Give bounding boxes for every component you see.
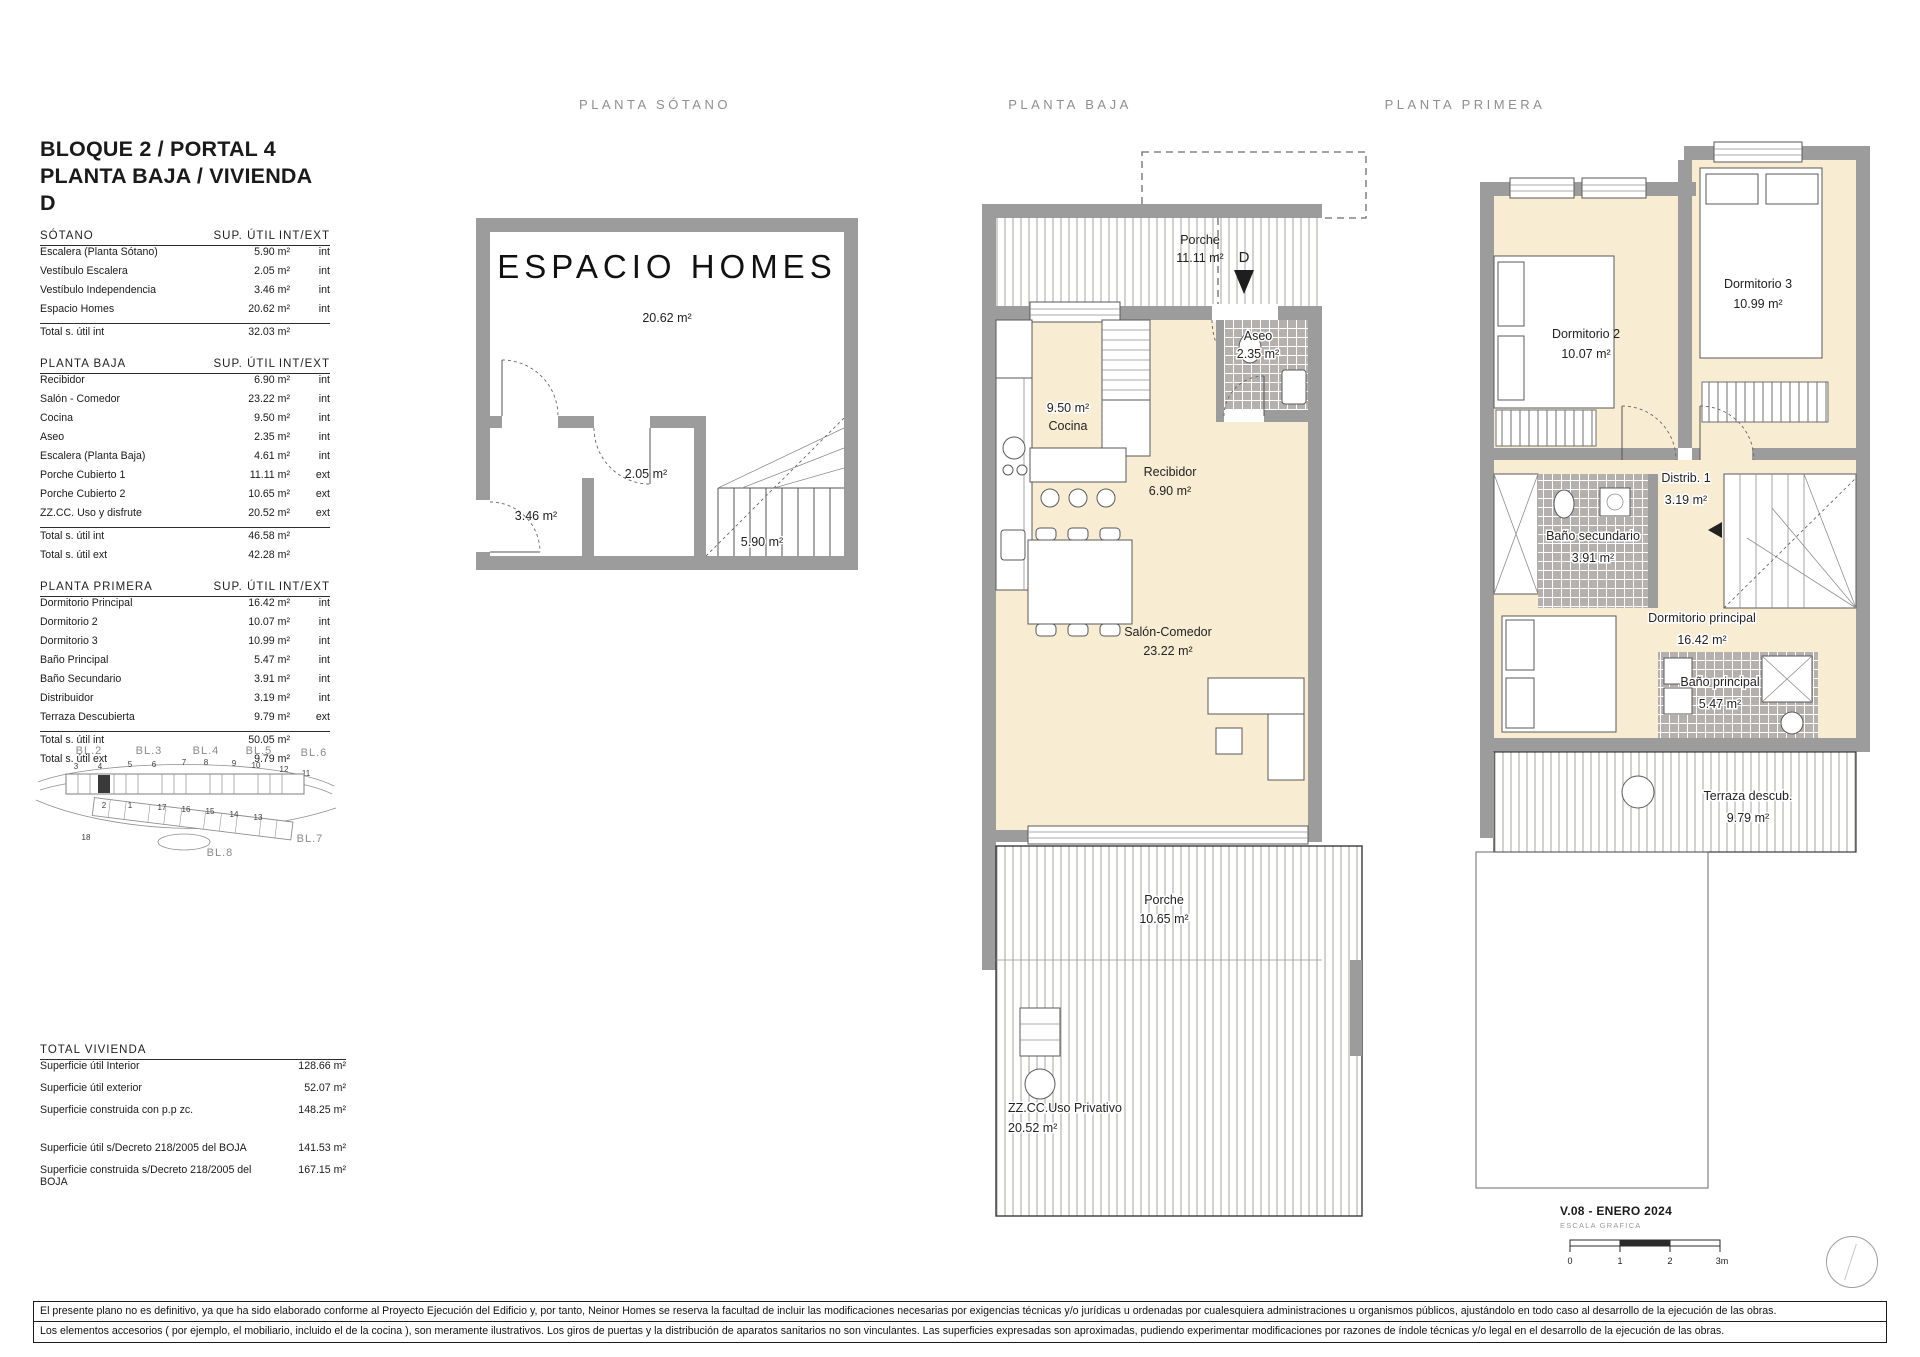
room-label: Salón-Comedor xyxy=(1124,625,1212,639)
site-unit-number: 5 xyxy=(128,760,133,769)
col-int-ext: INT/EXT xyxy=(276,230,330,242)
site-unit-number: 3 xyxy=(74,762,79,771)
floorplan-baja: Porche 11.11 m² D Aseo 2.35 m² xyxy=(972,148,1402,1233)
site-block-label: BL.3 xyxy=(136,745,163,757)
room-area: 3.91 m² xyxy=(1572,551,1614,565)
room-area: 23.22 m² xyxy=(1143,644,1192,658)
info-panel: BLOQUE 2 / PORTAL 4 PLANTA BAJA / VIVIEN… xyxy=(40,136,330,772)
room-area: 10.99 m² xyxy=(1733,297,1782,311)
table-row: Superficie útil exterior52.07 m² xyxy=(40,1082,346,1104)
site-unit-number: 6 xyxy=(152,760,157,769)
table-row: Escalera (Planta Sótano)5.90 m²int xyxy=(40,246,330,265)
site-plan-map: BL.2 BL.3 BL.4 BL.5 BL.6 BL.7 BL.8 3 4 5… xyxy=(34,738,338,862)
room-area: 5.47 m² xyxy=(1699,697,1741,711)
site-unit-number: 15 xyxy=(206,807,215,816)
table-row: Vestíbulo Escalera2.05 m²int xyxy=(40,265,330,284)
room-label: Terraza descub. xyxy=(1704,789,1793,803)
site-block-label: BL.6 xyxy=(301,747,328,759)
floorplan-sotano: ESPACIO HOMES 20.62 m² 3.46 m² 2.05 m² 5… xyxy=(462,148,882,608)
column-title-primera: PLANTA PRIMERA xyxy=(1345,97,1585,112)
room-label: ZZ.CC.Uso Privativo xyxy=(1008,1101,1122,1115)
site-block-label: BL.7 xyxy=(297,833,324,845)
table-totals: Total s. útil int46.58 m² Total s. útil … xyxy=(40,527,330,568)
floorplan-primera: Dormitorio 2 10.07 m² Dormitorio 3 10.99… xyxy=(1462,138,1892,1223)
site-unit-number: 17 xyxy=(158,803,167,812)
site-unit-number: 9 xyxy=(232,759,237,768)
table-totals: Total s. útil int32.03 m² xyxy=(40,323,330,345)
site-unit-number: 14 xyxy=(230,810,239,819)
room-area: 20.62 m² xyxy=(642,311,691,325)
version-label: V.08 - ENERO 2024 xyxy=(1560,1204,1800,1218)
site-unit-number: 8 xyxy=(204,758,209,767)
room-label: Porche xyxy=(1144,893,1184,907)
table-header-baja: PLANTA BAJA SUP. ÚTIL INT/EXT xyxy=(40,358,330,374)
page-title: BLOQUE 2 / PORTAL 4 PLANTA BAJA / VIVIEN… xyxy=(40,136,330,217)
table-row: Superficie útil s/Decreto 218/2005 del B… xyxy=(40,1142,346,1164)
room-label: Baño secundario xyxy=(1546,529,1640,543)
site-unit-number: 1 xyxy=(128,801,133,810)
room-label: Dormitorio 2 xyxy=(1552,327,1620,341)
graphic-scale-bar: 0 1 2 3m xyxy=(1560,1230,1780,1272)
table-row: Cocina9.50 m²int xyxy=(40,412,330,431)
brand-label: ESPACIO HOMES xyxy=(497,248,836,285)
table-row: Recibidor6.90 m²int xyxy=(40,374,330,393)
column-title-sotano: PLANTA SÓTANO xyxy=(535,97,775,112)
table-row: Terraza Descubierta9.79 m²ext xyxy=(40,711,330,730)
room-label: Dormitorio principal xyxy=(1648,611,1756,625)
table-row: Porche Cubierto 111.11 m²ext xyxy=(40,469,330,488)
total-vivienda-panel: TOTAL VIVIENDA Superficie útil Interior1… xyxy=(40,1044,346,1186)
site-unit-number: 13 xyxy=(254,813,263,822)
table-row: Escalera (Planta Baja)4.61 m²int xyxy=(40,450,330,469)
scale-tick: 1 xyxy=(1617,1256,1622,1266)
disclaimer-band: El presente plano no es definitivo, ya q… xyxy=(33,1301,1887,1343)
footer-version-block: V.08 - ENERO 2024 ESCALA GRAFICA 0 1 2 3… xyxy=(1560,1204,1800,1277)
scale-label: ESCALA GRAFICA xyxy=(1560,1221,1800,1230)
room-label: Recibidor xyxy=(1144,465,1197,479)
table-header-sotano: SÓTANO SUP. ÚTIL INT/EXT xyxy=(40,230,330,246)
room-area: 20.52 m² xyxy=(1008,1121,1057,1135)
section-label: TOTAL VIVIENDA xyxy=(40,1044,346,1056)
site-block-label: BL.4 xyxy=(193,745,220,757)
table-row: Salón - Comedor23.22 m²int xyxy=(40,393,330,412)
room-label: Porche xyxy=(1180,233,1220,247)
room-area: 10.07 m² xyxy=(1561,347,1610,361)
site-unit-number: 16 xyxy=(182,805,191,814)
col-sup-util: SUP. ÚTIL xyxy=(198,230,276,242)
disclaimer-line1: El presente plano no es definitivo, ya q… xyxy=(34,1302,1886,1323)
column-title-baja: PLANTA BAJA xyxy=(950,97,1190,112)
scale-tick: 3m xyxy=(1716,1256,1729,1266)
disclaimer-line2: Los elementos accesorios ( por ejemplo, … xyxy=(34,1322,1886,1342)
table-row: Dormitorio 310.99 m²int xyxy=(40,635,330,654)
room-label: Distrib. 1 xyxy=(1661,471,1710,485)
table-row: ZZ.CC. Uso y disfrute20.52 m²ext xyxy=(40,507,330,526)
site-unit-number: 12 xyxy=(280,765,289,774)
scale-tick: 0 xyxy=(1567,1256,1572,1266)
site-unit-number: 2 xyxy=(102,801,107,810)
highlighted-unit xyxy=(98,775,110,793)
room-label: Cocina xyxy=(1049,419,1088,433)
table-row: Superficie construida con p.p zc.148.25 … xyxy=(40,1104,346,1126)
site-block-label: BL.2 xyxy=(76,745,103,757)
table-row: Superficie útil Interior128.66 m² xyxy=(40,1060,346,1082)
plan-sheet: PLANTA SÓTANO PLANTA BAJA PLANTA PRIMERA… xyxy=(0,0,1920,1357)
site-block-label: BL.5 xyxy=(246,745,273,757)
page-title-line2: PLANTA BAJA / VIVIENDA D xyxy=(40,163,330,217)
table-row: Distribuidor3.19 m²int xyxy=(40,692,330,711)
site-unit-number: 4 xyxy=(98,762,103,771)
table-row: Aseo2.35 m²int xyxy=(40,431,330,450)
room-area: 16.42 m² xyxy=(1677,633,1726,647)
site-unit-number: 18 xyxy=(82,833,91,842)
table-row: Dormitorio 210.07 m²int xyxy=(40,616,330,635)
room-label: Dormitorio 3 xyxy=(1724,277,1792,291)
table-row: Espacio Homes20.62 m²int xyxy=(40,303,330,322)
section-label: SÓTANO xyxy=(40,230,198,242)
site-unit-number: 10 xyxy=(252,761,261,770)
room-area: 3.19 m² xyxy=(1665,493,1707,507)
entrance-marker-label: D xyxy=(1239,249,1250,266)
table-row: Vestíbulo Independencia3.46 m²int xyxy=(40,284,330,303)
room-area: 11.11 m² xyxy=(1176,251,1223,265)
room-area: 9.79 m² xyxy=(1727,811,1769,825)
table-row: Baño Secundario3.91 m²int xyxy=(40,673,330,692)
room-label: Aseo xyxy=(1244,329,1273,343)
site-block-label: BL.8 xyxy=(207,847,234,859)
site-unit-number: 7 xyxy=(182,758,187,767)
scale-tick: 2 xyxy=(1667,1256,1672,1266)
room-area: 6.90 m² xyxy=(1149,484,1191,498)
room-area: 2.05 m² xyxy=(625,467,667,481)
room-area: 2.35 m² xyxy=(1237,347,1279,361)
room-area: 9.50 m² xyxy=(1047,401,1089,415)
room-area: 10.65 m² xyxy=(1139,912,1188,926)
table-row: Dormitorio Principal16.42 m²int xyxy=(40,597,330,616)
table-row: Superficie construida s/Decreto 218/2005… xyxy=(40,1164,346,1186)
table-header-primera: PLANTA PRIMERA SUP. ÚTIL INT/EXT xyxy=(40,581,330,597)
room-area: 3.46 m² xyxy=(515,509,557,523)
page-title-line1: BLOQUE 2 / PORTAL 4 xyxy=(40,136,330,163)
table-row: Porche Cubierto 210.65 m²ext xyxy=(40,488,330,507)
table-row: Baño Principal5.47 m²int xyxy=(40,654,330,673)
room-area: 5.90 m² xyxy=(741,535,783,549)
room-label: Baño principal xyxy=(1680,675,1759,689)
north-circle-icon xyxy=(1826,1236,1878,1288)
